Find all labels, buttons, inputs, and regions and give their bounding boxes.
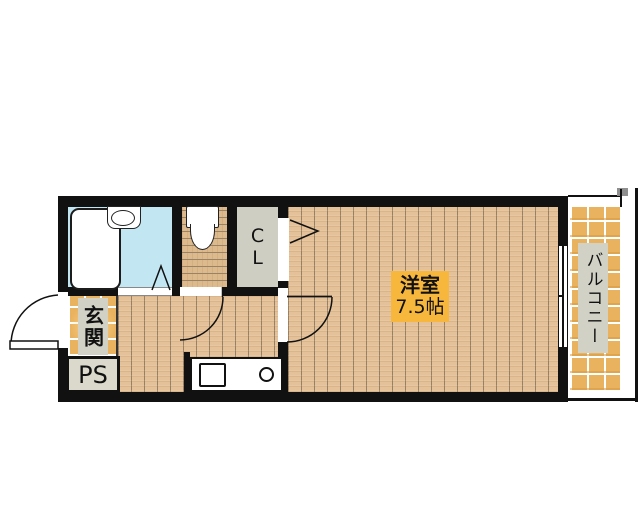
balcony-railing-outer-line — [635, 188, 638, 402]
entrance-step-edge — [116, 296, 118, 356]
stove-burner — [259, 367, 274, 382]
toilet-door-opening — [180, 287, 222, 296]
main-room-door-opening — [278, 288, 288, 342]
balcony-label-text: バルコニー — [581, 251, 606, 346]
balcony-railing-bottom-line — [566, 398, 637, 401]
closet-label: CL — [237, 207, 278, 287]
closet-door-opening — [278, 218, 289, 281]
wall-main-room-b — [278, 281, 288, 288]
wall-left-upper — [58, 196, 68, 292]
wall-main-room-a — [278, 207, 288, 218]
wall-right-upper — [558, 196, 568, 245]
main-room-name: 洋室 — [400, 274, 440, 297]
entrance-label-text: 玄関 — [79, 305, 108, 349]
closet-label-text: CL — [247, 225, 269, 269]
kitchen-sink — [199, 363, 226, 387]
main-room-label: 洋室 7.5帖 — [391, 271, 449, 322]
balcony-railing-inner-line — [620, 189, 622, 207]
wall-toilet-closet — [227, 207, 237, 287]
kitchen-counter — [190, 357, 283, 392]
balcony-railing-cap — [617, 188, 628, 196]
window-latch-tick — [558, 295, 563, 297]
main-room-area: 7.5帖 — [395, 297, 444, 319]
floor-plan: 玄関 PS CL 洋室 7.5帖 バルコニー — [0, 0, 640, 512]
window-center-line — [562, 246, 564, 347]
wall-bath-toilet — [172, 207, 182, 296]
balcony-label: バルコニー — [578, 243, 608, 353]
entrance-door-opening — [58, 292, 68, 348]
entrance-door — [10, 295, 58, 349]
bathroom-sink — [107, 206, 141, 229]
balcony-railing-top-line — [568, 195, 620, 197]
wall-right-lower — [558, 348, 568, 402]
pipe-space-label: PS — [78, 363, 108, 387]
sink-basin — [111, 210, 135, 226]
bath-door-opening — [118, 287, 172, 296]
entrance-label: 玄関 — [78, 298, 108, 355]
pipe-space-box: PS — [66, 356, 120, 393]
balcony-window — [558, 245, 568, 348]
wall-bottom — [58, 392, 568, 402]
